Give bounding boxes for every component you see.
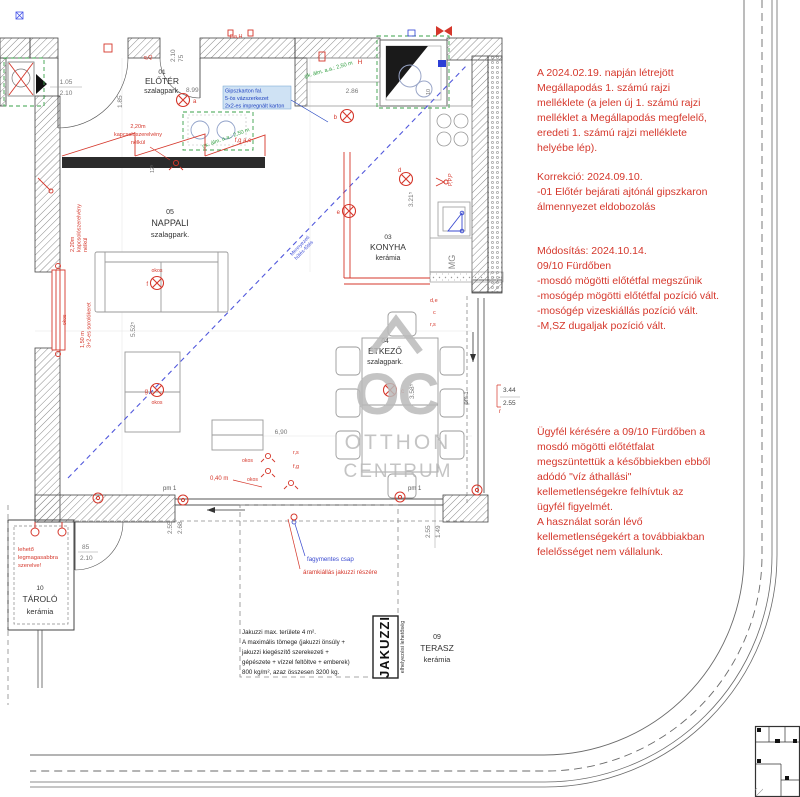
note-line: -01 Előtér bejárati ajtónál gipszkaron [537, 185, 795, 200]
key-plan [755, 726, 800, 797]
clima-route-label: Mennyezeti hűtés-fűtés [289, 235, 315, 262]
svg-text:800 kg/m², azaz összesen 3200: 800 kg/m², azaz összesen 3200 kg. [242, 669, 340, 676]
jacuzzi-note: Jakuzzi max. területe 4 m². A maximális … [241, 629, 350, 676]
svg-text:szalagpark.: szalagpark. [151, 230, 189, 239]
dim: 3.21⁵ [408, 191, 415, 207]
red-marker-icon [104, 44, 112, 52]
jacuzzi-power-note: áramkiállás jakuzzi részére [303, 569, 378, 576]
circuit-letter: a [193, 99, 197, 105]
room-label-tarolo: 10 TÁROLÓ kerámia [23, 585, 58, 616]
floorplan-sheet: JAKUZZI elhelyezési lehetőség Jakuzzi ma… [0, 0, 800, 797]
sink-faucet-icon [448, 211, 464, 233]
svg-text:gépészete + vízzel feltöltve +: gépészete + vízzel feltöltve + emberek) [242, 659, 350, 666]
entrance-arrow-icon [36, 74, 47, 94]
jacuzzi-sublabel: elhelyezési lehetőség [400, 621, 406, 674]
circuit-letter: r,s [293, 450, 299, 456]
pm1-label: pm 1 [163, 486, 177, 492]
room-label-eloter: 01 ELŐTÉR szalagpark. [144, 69, 180, 95]
note-agreement: A 2024.02.19. napján létrejött Megállapo… [537, 66, 795, 156]
note-line: Módosítás: 2024.10.14. [537, 244, 795, 259]
lamp-icon [400, 173, 413, 186]
svg-text:lehető: lehető [18, 547, 34, 553]
note-line: kellemetlenségekért a továbbiakban [537, 530, 795, 545]
svg-text:ELŐTÉR: ELŐTÉR [145, 76, 179, 86]
lamp-icon [177, 94, 190, 107]
dim: 3.44 [503, 387, 516, 394]
dim: 1.49 [435, 525, 442, 538]
dim: 2.10 [170, 49, 177, 62]
switch-icon [261, 453, 275, 462]
socket-icon [31, 522, 39, 536]
appliance-label: MG [447, 255, 457, 270]
note-line: kellemetlenségekre felhívtuk az [537, 485, 795, 500]
svg-text:kapcsolószerelvény: kapcsolószerelvény [77, 204, 83, 252]
note-line: eredeti 1. számú rajzi melléklete [537, 126, 795, 141]
circuit-letter: r,s [430, 322, 436, 328]
mount-high-note: lehető legmagasabbra szerelve! [18, 547, 59, 569]
svg-text:kapcsolószerelvény: kapcsolószerelvény [114, 132, 162, 138]
room-label-konyha: 03 KONYHA kerámia [370, 234, 406, 262]
note-line: melléklete (a jelen új 1. számú rajzi [537, 96, 795, 111]
note-correction: Korrekció: 2024.09.10. -01 Előtér bejára… [537, 170, 795, 215]
svg-text:03: 03 [384, 234, 392, 241]
svg-text:TERASZ: TERASZ [420, 643, 454, 653]
cabinet [125, 352, 180, 432]
svg-text:09: 09 [433, 634, 441, 641]
circuit-letter: f,g a,c [235, 138, 251, 144]
note-line: Ügyfél kérésére a 09/10 Fürdőben a [537, 425, 795, 440]
note-line: Megállapodás 1. számú rajzi [537, 81, 795, 96]
lamp-icon [341, 110, 354, 123]
circuit-letter: b [334, 115, 338, 121]
slide-arrow-icon [470, 354, 476, 362]
window-marker-icon [438, 60, 446, 67]
circuit-letter: d [398, 168, 401, 174]
svg-text:2,20m: 2,20m [70, 236, 76, 252]
sofa [95, 252, 228, 312]
dim: 2.86 [346, 88, 359, 95]
note-line: megszüntettük a későbbiekben ebből [537, 455, 795, 470]
svg-text:kerámia: kerámia [424, 655, 452, 664]
svg-text:2x2-es impregnált karton: 2x2-es impregnált karton [225, 104, 284, 110]
circuit-letter: c [433, 310, 436, 316]
note-client: Ügyfél kérésére a 09/10 Fürdőben a mosdó… [537, 425, 795, 560]
watermark-logo: OC [355, 362, 439, 427]
svg-text:01: 01 [158, 69, 166, 76]
svg-text:legmagasabbra: legmagasabbra [18, 555, 59, 561]
window-frame-note: 1,50 m 3+2-es sorolókeret [80, 302, 93, 348]
svg-text:TÁROLÓ: TÁROLÓ [23, 594, 58, 604]
distance-label: 0,40 m [210, 476, 228, 482]
note-line: A használat során lévő [537, 515, 795, 530]
watermark-line1: OTTHON [345, 431, 452, 454]
burner-icon [454, 114, 468, 128]
washing-machine [8, 62, 34, 96]
burner-icon [454, 132, 468, 146]
note-line: A 2024.02.19. napján létrejött [537, 66, 795, 81]
dim: 2.10 [60, 90, 73, 97]
jacuzzi-label-box: JAKUZZI elhelyezési lehetőség [373, 616, 406, 678]
dim: 1.05 [60, 79, 73, 86]
svg-text:10: 10 [36, 585, 44, 592]
dim: 5.52⁵ [130, 321, 137, 337]
note-line: helyébe lép). [537, 141, 795, 156]
window-marker-icon [408, 30, 415, 36]
okos-label: okos [242, 458, 253, 464]
note-modification: Módosítás: 2024.10.14. 09/10 Fürdőben -m… [537, 244, 795, 334]
window [52, 264, 65, 357]
switch-note: 2,20m kapcsolószerelvény nélkül [114, 124, 162, 146]
burner-icon [437, 132, 451, 146]
circuit-letter: q,Q [144, 55, 154, 61]
switch-icon [284, 480, 298, 489]
circuit-letter: f,g [293, 464, 299, 470]
blue-x-marker-icon [16, 12, 23, 19]
storage-room [8, 520, 74, 688]
dim: 2.68 [177, 521, 184, 534]
watermark-line2: CENTRUM [344, 461, 453, 482]
svg-text:szalagpark.: szalagpark. [144, 88, 180, 95]
ceiling-note: gk. álm. a.a.: 2,50 m [304, 60, 354, 80]
dim: 75 [178, 54, 185, 62]
note-line: mosdó mögötti előtétfalat [537, 440, 795, 455]
okos-label: okos [152, 268, 163, 274]
note-line: ügyfél figyelmét. [537, 500, 795, 515]
svg-text:NAPPALI: NAPPALI [151, 218, 188, 228]
dim: 10 [426, 89, 432, 95]
pm1-label: pm 1 [408, 486, 422, 492]
socket-icon [291, 514, 297, 520]
dim: 12⁵ [149, 165, 156, 173]
room-label-terasz: 09 TERASZ kerámia [420, 634, 454, 664]
dim: 8.99 [186, 87, 199, 94]
plasterboard-wall-callout: Gipszkarton fal. 5-ös vázszerkezet 2x2-e… [223, 86, 328, 122]
room-label-nappali: 05 NAPPALI szalagpark. [151, 209, 189, 239]
circuit-letter: d,e [430, 298, 438, 304]
svg-text:nélkül: nélkül [83, 238, 89, 252]
circuit-letter: r [499, 409, 501, 415]
burner-icon [437, 114, 451, 128]
jacuzzi-label: JAKUZZI [377, 616, 392, 678]
red-marker-icon [248, 30, 253, 36]
svg-text:3+2-es sorolókeret: 3+2-es sorolókeret [87, 302, 93, 348]
svg-text:05: 05 [166, 209, 174, 216]
svg-text:Jakuzzi max. területe 4 m².: Jakuzzi max. területe 4 m². [242, 629, 316, 636]
circuit-letter: e [337, 210, 341, 216]
note-line: -mosdó mögötti előtétfal megszűnik [537, 274, 795, 289]
dim: 85 [82, 544, 90, 551]
svg-text:szerelve!: szerelve! [18, 563, 42, 569]
circuit-letter: Ga,H [230, 34, 243, 40]
slide-arrow-icon [207, 507, 215, 513]
svg-text:1,50 m: 1,50 m [80, 331, 86, 348]
socket-icon [472, 485, 482, 495]
low-cabinet [212, 420, 263, 450]
svg-text:jakuzzi kiegészítő szerekezeti: jakuzzi kiegészítő szerekezeti + [241, 649, 329, 656]
note-line: -mosógép mögötti előtétfal pozíció vált. [537, 289, 795, 304]
dim: 2.10 [80, 555, 93, 562]
okos-label: okos [62, 314, 68, 325]
circuit-letter: g [145, 389, 148, 395]
svg-text:kerámia: kerámia [27, 607, 55, 616]
dim: 2.55 [425, 525, 432, 538]
switch-note-rotated: 2,20m kapcsolószerelvény nélkül [70, 204, 89, 252]
wardrobe [62, 157, 265, 168]
dim: 6,90 [275, 429, 288, 436]
note-line: -M,SZ dugaljak pozíció vált. [537, 319, 795, 334]
pm1-label: pm 1 [464, 391, 470, 405]
note-line: melléklet a Megállapodás megfelelő, [537, 111, 795, 126]
dim: 1.85 [117, 95, 124, 108]
circuit-letter: H [358, 59, 363, 66]
switch-icon [261, 468, 275, 477]
faucet-icon [436, 178, 448, 186]
circuit-letter: P,P,P [448, 173, 454, 186]
frostproof-tap-label: fagymentes csap [307, 556, 354, 563]
note-line: -mosógép vizeskiállás pozíció vált. [537, 304, 795, 319]
svg-text:2,20m: 2,20m [130, 124, 146, 130]
note-line: 09/10 Fürdőben [537, 259, 795, 274]
svg-text:nélkül: nélkül [131, 140, 145, 146]
dim: 2.55 [167, 521, 174, 534]
svg-text:5-ös vázszerkezet: 5-ös vázszerkezet [225, 96, 269, 102]
okos-label: okos [247, 477, 258, 483]
svg-text:kerámia: kerámia [376, 255, 401, 262]
dim: 2.55 [503, 400, 516, 407]
svg-text:A maximális tömege (jakuzzi ön: A maximális tömege (jakuzzi önsúly + [242, 639, 345, 646]
socket-icon [178, 495, 188, 505]
note-line: felelősséget nem vállalunk. [537, 545, 795, 560]
note-line: adódó "víz áthallási" [537, 470, 795, 485]
svg-text:Gipszkarton fal.: Gipszkarton fal. [225, 89, 262, 95]
svg-text:KONYHA: KONYHA [370, 242, 406, 252]
okos-label: okos [152, 400, 163, 406]
note-line: Korrekció: 2024.09.10. [537, 170, 795, 185]
valve-icon [436, 26, 452, 36]
socket-icon [58, 522, 66, 536]
note-line: álmennyezet eldobozolás [537, 200, 795, 215]
